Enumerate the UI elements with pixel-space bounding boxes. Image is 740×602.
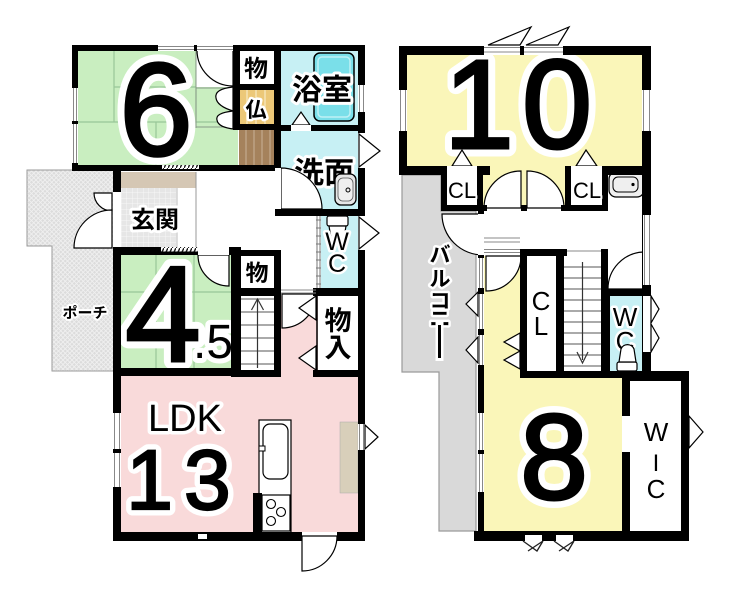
svg-text:CL: CL <box>573 178 601 203</box>
svg-text:L: L <box>534 311 548 341</box>
svg-text:4: 4 <box>125 238 201 390</box>
svg-text:I: I <box>653 450 660 477</box>
svg-text:.5: .5 <box>193 316 233 369</box>
svg-text:13: 13 <box>126 433 241 527</box>
svg-text:10: 10 <box>444 34 600 175</box>
svg-text:C: C <box>647 474 666 504</box>
svg-text:C: C <box>328 250 346 278</box>
svg-text:W: W <box>644 417 669 447</box>
svg-text:6: 6 <box>119 36 192 183</box>
svg-text:CL: CL <box>448 178 476 203</box>
svg-text:8: 8 <box>520 389 588 525</box>
